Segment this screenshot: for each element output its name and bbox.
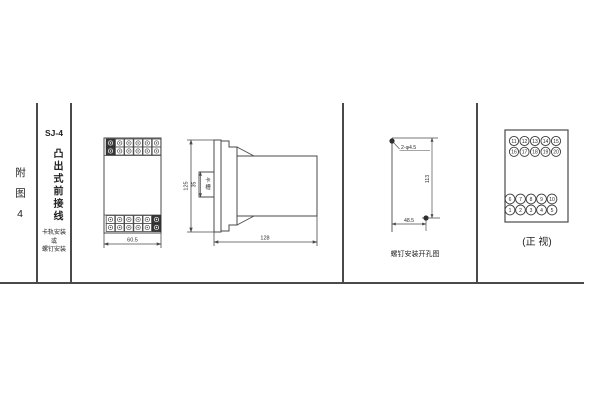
slot-label-char1: 卡 [205,176,211,184]
horizontal-hole-dimension-label: 48.5 [404,218,414,224]
frame-baseline [0,282,584,284]
drill-layout-lines [392,138,440,232]
terminal-19: 19 [543,150,549,156]
terminal-18: 18 [532,150,538,156]
terminal-2: 2 [519,208,522,214]
side-profile [199,140,317,232]
side-view-drawing: 125 35 卡 槽 128 [180,128,330,253]
hole-callout-label: 2-φ4.5 [401,145,416,151]
terminal-numbering-drawing: 11 12 13 14 15 16 17 18 19 20 6 7 8 9 10… [495,125,595,230]
model-label: SJ-4 [37,128,71,138]
figure-number: 附图4 [13,167,28,230]
terminal-17: 17 [522,150,528,156]
terminal-11: 11 [511,139,516,145]
mounting-note-line1: 卡轨安装 [37,229,71,238]
terminal-7: 7 [519,197,522,203]
terminal-12: 12 [522,139,528,145]
terminal-10: 10 [549,197,555,203]
mounting-note-line2: 或 [37,238,71,247]
mounting-note-line3: 螺钉安装 [37,246,71,255]
terminal-6: 6 [509,197,512,203]
slot-label-char2: 槽 [205,183,211,191]
front-outline-drawing: 60.5 [95,130,175,255]
frame-divider-4 [476,103,478,283]
drill-hole-drawing: 2-φ4.5 113 48.5 [360,130,460,245]
mounting-note: 卡轨安装 或 螺钉安装 [37,229,71,255]
terminal-9: 9 [540,197,543,203]
terminal-8: 8 [530,197,533,203]
terminal-circles: 11 12 13 14 15 16 17 18 19 20 6 7 8 9 10… [505,136,560,215]
terminal-16: 16 [511,150,517,156]
terminal-1: 1 [509,208,512,214]
terminal-15: 15 [553,139,559,145]
terminal-20: 20 [553,150,559,156]
bottom-mounting-hole [423,215,428,220]
figure-page: { "page": { "bg": "#ffffff", "line_color… [0,0,600,400]
height-dimension-label: 125 [184,181,190,190]
wiring-type-label: 凸出式前接线 [49,148,64,223]
top-terminal-strip [106,139,161,155]
terminal-3: 3 [530,208,533,214]
terminal-4: 4 [540,208,543,214]
slot-dimension-label: 35 [192,182,198,188]
depth-dimension-label: 128 [260,236,269,242]
terminal-13: 13 [532,139,538,145]
terminal-14: 14 [543,139,549,145]
drill-drawing-caption: 螺钉安装开孔图 [377,249,453,259]
vertical-hole-dimension-label: 113 [425,175,431,183]
frame-divider-3 [342,103,344,283]
terminal-5: 5 [551,208,554,214]
front-view-caption: (正 视) [505,233,569,248]
width-dimension-label: 60.5 [127,238,138,244]
bottom-terminal-strip [106,216,161,232]
